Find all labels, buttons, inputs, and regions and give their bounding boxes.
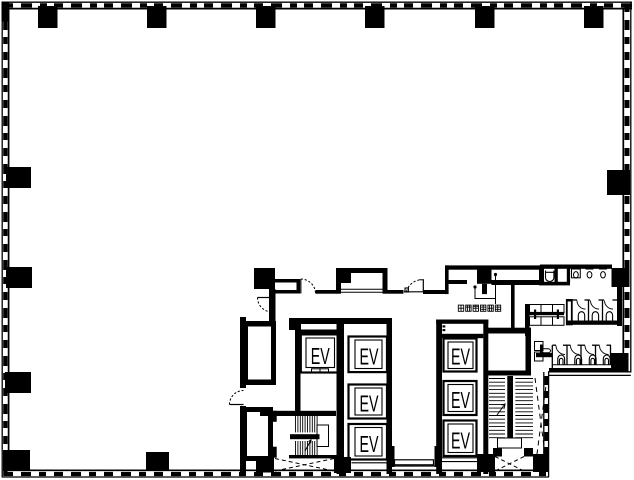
svg-text:EV: EV (311, 343, 330, 369)
svg-text:EV: EV (360, 344, 379, 370)
svg-text:EV: EV (360, 391, 379, 417)
svg-text:EV: EV (360, 431, 379, 457)
svg-text:EV: EV (451, 344, 470, 370)
svg-text:EV: EV (451, 387, 470, 413)
svg-text:EV: EV (451, 428, 470, 454)
